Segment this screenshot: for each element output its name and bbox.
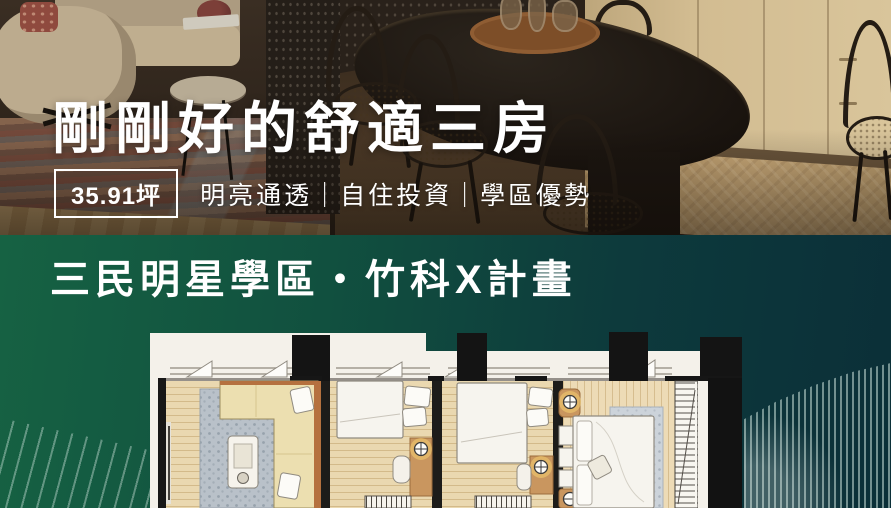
area-badge: 35.91坪 (54, 169, 178, 218)
wall (432, 381, 442, 508)
outer-strip (698, 381, 708, 508)
floor-plan (144, 332, 742, 508)
hero-tagline: 明亮通透｜自住投資｜學區優勢 (200, 176, 592, 212)
location-title: 三民明星學區・竹科X計畫 (50, 247, 577, 305)
master-bedroom-furniture (559, 389, 663, 508)
fan-lines-decoration (744, 360, 891, 508)
floor-plan-top-wall (150, 332, 742, 388)
left-wall (158, 378, 166, 508)
hero-meta-row: 35.91坪 明亮通透｜自住投資｜學區優勢 (54, 169, 592, 218)
real-estate-ad-banner: 剛剛好的舒適三房 35.91坪 明亮通透｜自住投資｜學區優勢 三民明星學區・竹科… (0, 0, 891, 508)
hero-photo-section: 剛剛好的舒適三房 35.91坪 明亮通透｜自住投資｜學區優勢 (0, 0, 891, 235)
outer-strip (150, 378, 158, 508)
location-section: 三民明星學區・竹科X計畫 (0, 235, 891, 508)
right-wall (708, 378, 742, 508)
hero-title: 剛剛好的舒適三房 (52, 84, 556, 165)
wall (320, 381, 330, 508)
